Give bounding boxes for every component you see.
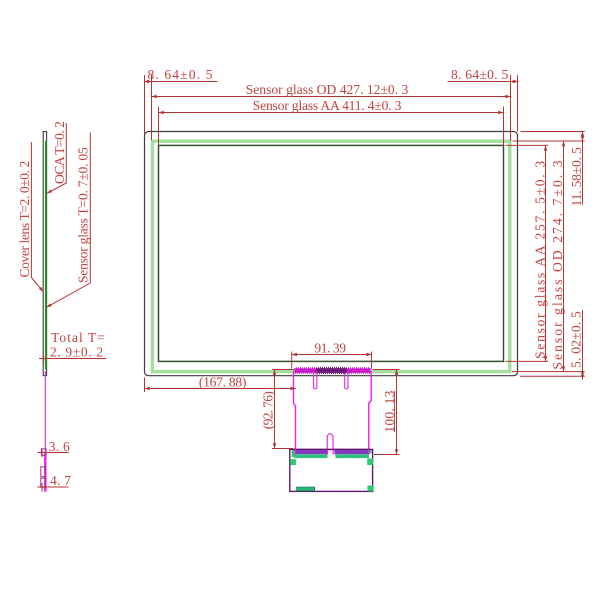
svg-text:8. 64±0. 5: 8. 64±0. 5 (451, 67, 509, 82)
svg-text:Sensor glass T=0. 7±0. 05: Sensor glass T=0. 7±0. 05 (75, 147, 90, 283)
svg-text:(167. 88): (167. 88) (199, 374, 246, 390)
svg-text:11. 58±0. 5: 11. 58±0. 5 (569, 147, 584, 207)
svg-text:(92. 76): (92. 76) (261, 392, 277, 430)
svg-text:91. 39: 91. 39 (314, 340, 346, 355)
svg-text:OCA T=0. 2: OCA T=0. 2 (52, 121, 67, 184)
svg-text:8. 64±0. 5: 8. 64±0. 5 (148, 67, 214, 82)
svg-text:Total T=: Total T= (51, 330, 106, 345)
svg-text:2. 9±0. 2: 2. 9±0. 2 (50, 345, 104, 360)
svg-text:Sensor glass AA 257. 5±0. 3: Sensor glass AA 257. 5±0. 3 (533, 159, 548, 359)
svg-text:3. 6: 3. 6 (49, 439, 70, 454)
svg-text:Sensor glass OD 274. 7±0. 3: Sensor glass OD 274. 7±0. 3 (550, 158, 565, 369)
svg-text:Sensor glass AA 411. 4±0. 3: Sensor glass AA 411. 4±0. 3 (253, 98, 402, 113)
svg-text:Sensor glass OD 427. 12±0. 3: Sensor glass OD 427. 12±0. 3 (246, 82, 409, 97)
svg-text:5. 02±0. 5: 5. 02±0. 5 (569, 311, 584, 368)
svg-text:Cover lens T=2. 0±0. 2: Cover lens T=2. 0±0. 2 (17, 160, 32, 277)
svg-text:4. 7: 4. 7 (50, 473, 71, 488)
